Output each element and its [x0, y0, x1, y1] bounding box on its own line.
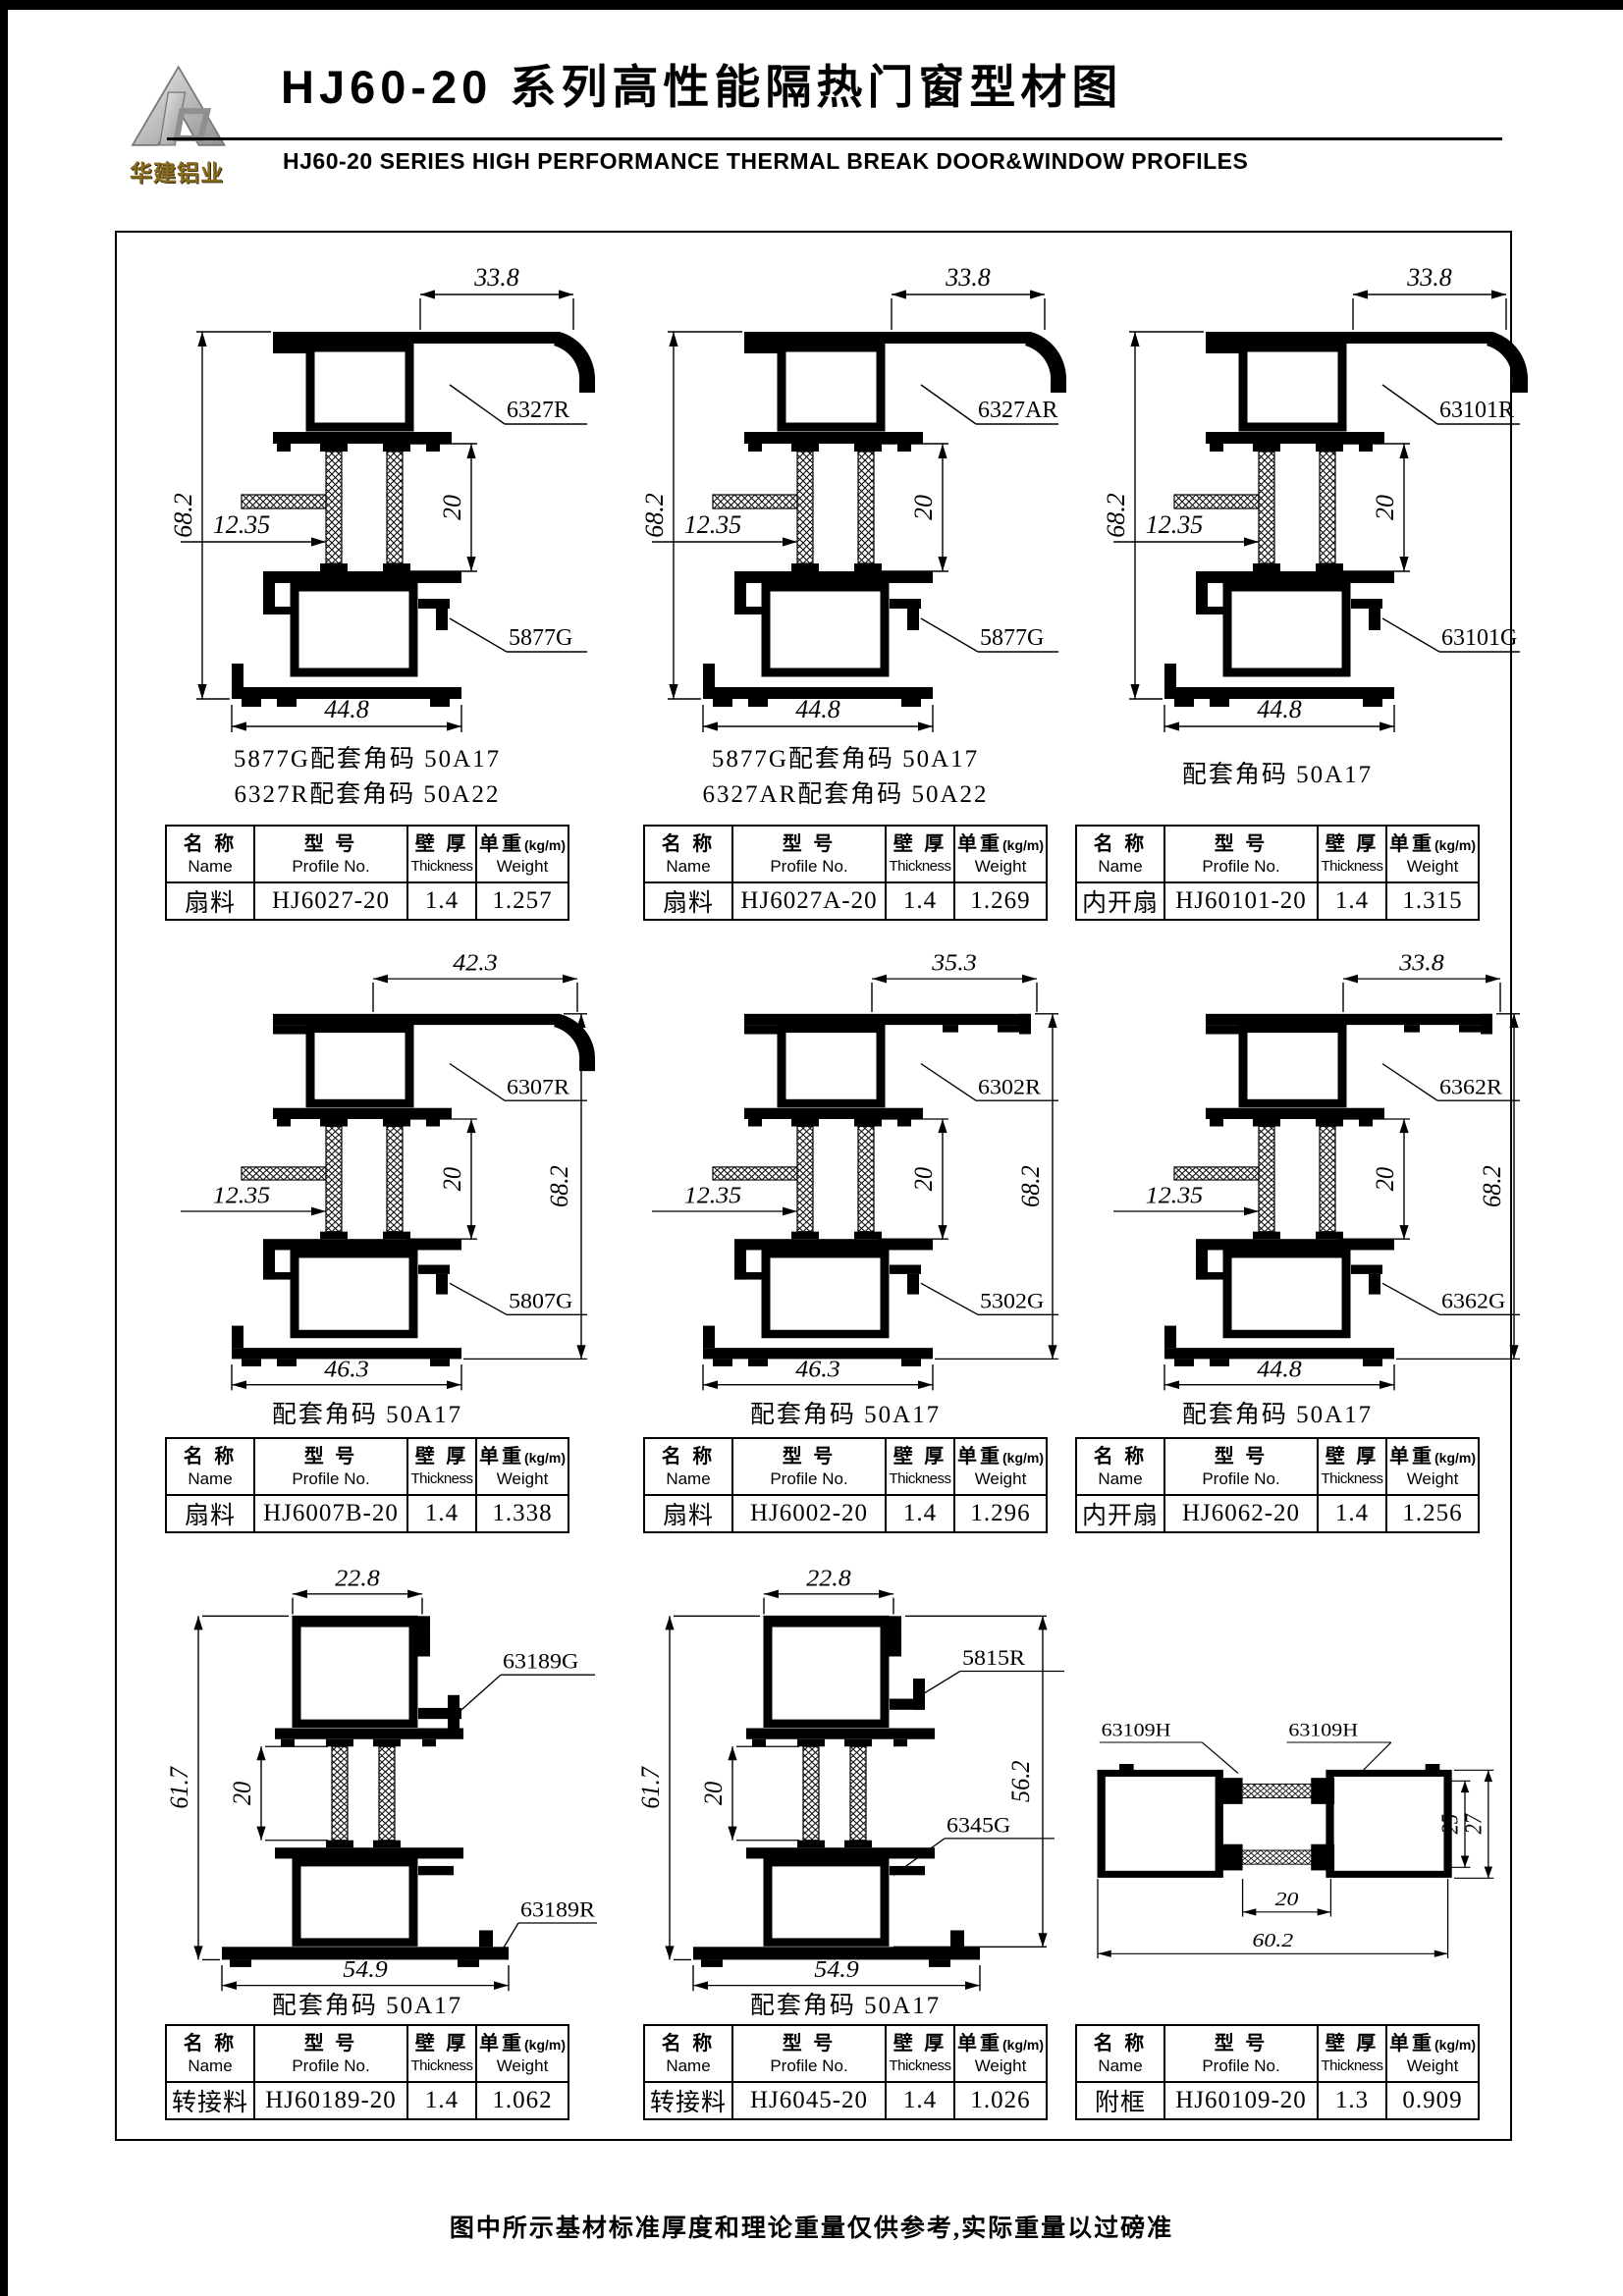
col-header-thickness: 壁 厚Thickness [886, 1438, 954, 1495]
svg-text:63109H: 63109H [1288, 1721, 1358, 1740]
table-row: 扇料 HJ6027-20 1.4 1.257 [166, 882, 568, 920]
profile-drawing-8: 63109H63109H25272060.2 [1065, 1710, 1497, 2034]
svg-text:12.35: 12.35 [213, 1183, 270, 1208]
cell-profile-no: HJ6062-20 [1164, 1495, 1318, 1532]
svg-text:68.2: 68.2 [640, 493, 669, 538]
cell-weight: 1.026 [954, 2082, 1047, 2119]
spec-table-6: 名 称Name 型 号Profile No. 壁 厚Thickness 单重(k… [165, 2024, 569, 2120]
svg-text:54.9: 54.9 [814, 1957, 859, 1983]
profile-drawing-0: 33.868.212.352044.86327R5877G [126, 247, 597, 738]
svg-text:61.7: 61.7 [166, 1766, 193, 1809]
svg-text:68.2: 68.2 [546, 1165, 573, 1207]
svg-text:20: 20 [1371, 495, 1399, 520]
col-header-thickness: 壁 厚Thickness [886, 2025, 954, 2082]
svg-text:68.2: 68.2 [1017, 1165, 1045, 1207]
svg-text:44.8: 44.8 [1257, 695, 1302, 723]
fitting-note-line: 6327AR配套角码 50A22 [643, 777, 1048, 813]
cell-name: 扇料 [166, 882, 254, 920]
spec-table-2: 名 称Name 型 号Profile No. 壁 厚Thickness 单重(k… [1075, 825, 1480, 921]
cell-name: 转接料 [644, 2082, 732, 2119]
svg-text:5302G: 5302G [980, 1289, 1044, 1313]
col-header-profile: 型 号Profile No. [732, 1438, 886, 1495]
table-row: 转接料 HJ60189-20 1.4 1.062 [166, 2082, 568, 2119]
logo-mark-icon [126, 63, 228, 149]
col-header-profile: 型 号Profile No. [732, 826, 886, 882]
fitting-note-line: 5877G配套角码 50A17 [165, 742, 569, 777]
svg-text:20: 20 [700, 1781, 728, 1805]
cell-profile-no: HJ60189-20 [254, 2082, 407, 2119]
cell-profile-no: HJ6002-20 [732, 1495, 886, 1532]
profile-drawing-4: 35.368.212.352046.36302R5302G [597, 934, 1068, 1396]
cell-weight: 1.338 [476, 1495, 568, 1532]
svg-text:63101G: 63101G [1441, 625, 1517, 651]
col-header-thickness: 壁 厚Thickness [407, 2025, 476, 2082]
cell-name: 扇料 [644, 1495, 732, 1532]
svg-text:20: 20 [1275, 1887, 1299, 1909]
svg-text:12.35: 12.35 [684, 1183, 741, 1208]
col-header-name: 名 称Name [644, 2025, 732, 2082]
company-logo: 华建铝业 [120, 63, 234, 187]
svg-text:20: 20 [1372, 1167, 1399, 1192]
svg-text:5877G: 5877G [509, 625, 572, 651]
page-subtitle: HJ60-20 SERIES HIGH PERFORMANCE THERMAL … [283, 148, 1248, 175]
cell-thickness: 1.3 [1318, 2082, 1386, 2119]
svg-text:56.2: 56.2 [1007, 1760, 1035, 1802]
svg-text:60.2: 60.2 [1252, 1929, 1293, 1951]
col-header-weight: 单重(kg/m)Weight [476, 1438, 568, 1495]
svg-text:44.8: 44.8 [795, 695, 840, 723]
svg-text:44.8: 44.8 [324, 695, 369, 723]
spec-table-3: 名 称Name 型 号Profile No. 壁 厚Thickness 单重(k… [165, 1437, 569, 1533]
svg-text:25: 25 [1436, 1814, 1463, 1834]
cell-profile-no: HJ6027A-20 [732, 882, 886, 920]
cell-weight: 1.269 [954, 882, 1047, 920]
svg-text:20: 20 [439, 1167, 466, 1192]
col-header-thickness: 壁 厚Thickness [1318, 2025, 1386, 2082]
table-row: 转接料 HJ6045-20 1.4 1.026 [644, 2082, 1047, 2119]
svg-text:5807G: 5807G [509, 1289, 572, 1313]
page-title: HJ60-20 系列高性能隔热门窗型材图 [281, 49, 1122, 117]
table-row: 内开扇 HJ60101-20 1.4 1.315 [1076, 882, 1479, 920]
spec-table-7: 名 称Name 型 号Profile No. 壁 厚Thickness 单重(k… [643, 2024, 1048, 2120]
profile-drawing-3: 42.368.212.352046.36307R5807G [126, 934, 597, 1396]
col-header-name: 名 称Name [1076, 2025, 1164, 2082]
svg-text:33.8: 33.8 [1406, 263, 1452, 292]
col-header-thickness: 壁 厚Thickness [1318, 1438, 1386, 1495]
cell-profile-no: HJ60101-20 [1164, 882, 1318, 920]
svg-text:54.9: 54.9 [343, 1957, 388, 1983]
col-header-profile: 型 号Profile No. [254, 1438, 407, 1495]
fitting-note-2: 配套角码 50A17 [1075, 758, 1480, 793]
fitting-note-7: 配套角码 50A17 [643, 1989, 1048, 2024]
table-row: 扇料 HJ6007B-20 1.4 1.338 [166, 1495, 568, 1532]
col-header-name: 名 称Name [1076, 1438, 1164, 1495]
spec-table-5: 名 称Name 型 号Profile No. 壁 厚Thickness 单重(k… [1075, 1437, 1480, 1533]
col-header-thickness: 壁 厚Thickness [1318, 826, 1386, 882]
cell-thickness: 1.4 [407, 1495, 476, 1532]
col-header-name: 名 称Name [1076, 826, 1164, 882]
spec-table-4: 名 称Name 型 号Profile No. 壁 厚Thickness 单重(k… [643, 1437, 1048, 1533]
title-rule [167, 137, 1502, 140]
svg-text:6362R: 6362R [1439, 1075, 1502, 1099]
col-header-profile: 型 号Profile No. [1164, 1438, 1318, 1495]
col-header-name: 名 称Name [166, 826, 254, 882]
logo-text: 华建铝业 [120, 154, 234, 187]
fitting-note-line: 配套角码 50A17 [165, 1989, 569, 2024]
svg-text:63101R: 63101R [1439, 398, 1514, 423]
svg-text:46.3: 46.3 [795, 1357, 839, 1382]
page-edge-left [0, 0, 8, 2296]
col-header-thickness: 壁 厚Thickness [407, 1438, 476, 1495]
cell-name: 内开扇 [1076, 882, 1164, 920]
svg-text:35.3: 35.3 [931, 950, 977, 976]
cell-profile-no: HJ6027-20 [254, 882, 407, 920]
svg-text:12.35: 12.35 [1146, 1183, 1203, 1208]
svg-text:33.8: 33.8 [945, 263, 991, 292]
cell-name: 扇料 [644, 882, 732, 920]
drawing-sheet: 华建铝业 HJ60-20 系列高性能隔热门窗型材图 HJ60-20 SERIES… [0, 0, 1623, 2296]
cell-weight: 1.256 [1386, 1495, 1479, 1532]
svg-text:6327AR: 6327AR [978, 398, 1057, 423]
col-header-profile: 型 号Profile No. [1164, 826, 1318, 882]
cell-profile-no: HJ60109-20 [1164, 2082, 1318, 2119]
svg-text:63189G: 63189G [503, 1649, 579, 1674]
svg-text:46.3: 46.3 [324, 1357, 368, 1382]
cell-thickness: 1.4 [407, 882, 476, 920]
svg-text:12.35: 12.35 [213, 510, 271, 539]
cell-weight: 1.296 [954, 1495, 1047, 1532]
fitting-note-line: 5877G配套角码 50A17 [643, 742, 1048, 777]
col-header-weight: 单重(kg/m)Weight [954, 2025, 1047, 2082]
cell-name: 转接料 [166, 2082, 254, 2119]
svg-text:33.8: 33.8 [473, 263, 519, 292]
fitting-note-6: 配套角码 50A17 [165, 1989, 569, 2024]
svg-text:33.8: 33.8 [1398, 950, 1444, 976]
profile-drawing-6: 22.861.72054.963189G63189R [128, 1563, 599, 1995]
cell-profile-no: HJ6045-20 [732, 2082, 886, 2119]
profile-drawing-7: 22.861.72054.956.25815R6345G [599, 1563, 1070, 1995]
fitting-note-line: 6327R配套角码 50A22 [165, 777, 569, 813]
profile-drawing-1: 33.868.212.352044.86327AR5877G [597, 247, 1068, 738]
col-header-profile: 型 号Profile No. [1164, 2025, 1318, 2082]
svg-text:6302R: 6302R [978, 1075, 1041, 1099]
svg-text:5877G: 5877G [980, 625, 1044, 651]
svg-text:68.2: 68.2 [1102, 493, 1130, 538]
cell-name: 附框 [1076, 2082, 1164, 2119]
cell-thickness: 1.4 [886, 882, 954, 920]
svg-text:20: 20 [438, 495, 466, 520]
svg-text:12.35: 12.35 [1146, 510, 1204, 539]
col-header-weight: 单重(kg/m)Weight [476, 2025, 568, 2082]
col-header-weight: 单重(kg/m)Weight [1386, 2025, 1479, 2082]
fitting-note-line: 配套角码 50A17 [165, 1398, 569, 1433]
svg-text:63109H: 63109H [1102, 1721, 1171, 1740]
col-header-weight: 单重(kg/m)Weight [476, 826, 568, 882]
cell-weight: 1.315 [1386, 882, 1479, 920]
col-header-name: 名 称Name [644, 826, 732, 882]
cell-thickness: 1.4 [1318, 1495, 1386, 1532]
fitting-note-line: 配套角码 50A17 [1075, 1398, 1480, 1433]
svg-text:5815R: 5815R [962, 1646, 1025, 1671]
cell-profile-no: HJ6007B-20 [254, 1495, 407, 1532]
svg-text:6307R: 6307R [507, 1075, 569, 1099]
svg-text:68.2: 68.2 [1479, 1165, 1506, 1207]
table-row: 扇料 HJ6027A-20 1.4 1.269 [644, 882, 1047, 920]
fitting-note-5: 配套角码 50A17 [1075, 1398, 1480, 1433]
svg-text:6362G: 6362G [1441, 1289, 1505, 1313]
fitting-note-3: 配套角码 50A17 [165, 1398, 569, 1433]
profile-drawing-5: 33.868.212.352044.86362R6362G [1058, 934, 1530, 1396]
col-header-weight: 单重(kg/m)Weight [954, 1438, 1047, 1495]
fitting-note-line: 配套角码 50A17 [643, 1398, 1048, 1433]
table-row: 内开扇 HJ6062-20 1.4 1.256 [1076, 1495, 1479, 1532]
svg-text:12.35: 12.35 [684, 510, 742, 539]
svg-text:61.7: 61.7 [637, 1766, 665, 1809]
table-row: 附框 HJ60109-20 1.3 0.909 [1076, 2082, 1479, 2119]
cell-thickness: 1.4 [407, 2082, 476, 2119]
col-header-weight: 单重(kg/m)Weight [1386, 1438, 1479, 1495]
cell-thickness: 1.4 [886, 1495, 954, 1532]
svg-text:6327R: 6327R [507, 398, 569, 423]
col-header-weight: 单重(kg/m)Weight [954, 826, 1047, 882]
svg-text:63189R: 63189R [520, 1897, 595, 1922]
col-header-profile: 型 号Profile No. [254, 2025, 407, 2082]
col-header-profile: 型 号Profile No. [254, 826, 407, 882]
svg-text:20: 20 [229, 1781, 256, 1805]
page-edge-top [0, 0, 1623, 10]
col-header-thickness: 壁 厚Thickness [886, 826, 954, 882]
cell-weight: 1.062 [476, 2082, 568, 2119]
col-header-name: 名 称Name [166, 1438, 254, 1495]
col-header-name: 名 称Name [166, 2025, 254, 2082]
svg-text:42.3: 42.3 [453, 950, 497, 976]
cell-weight: 1.257 [476, 882, 568, 920]
svg-text:22.8: 22.8 [806, 1566, 851, 1591]
spec-table-0: 名 称Name 型 号Profile No. 壁 厚Thickness 单重(k… [165, 825, 569, 921]
svg-text:20: 20 [910, 1167, 938, 1192]
col-header-weight: 单重(kg/m)Weight [1386, 826, 1479, 882]
fitting-note-line: 配套角码 50A17 [1075, 758, 1480, 793]
cell-name: 扇料 [166, 1495, 254, 1532]
fitting-note-0: 5877G配套角码 50A176327R配套角码 50A22 [165, 742, 569, 813]
cell-thickness: 1.4 [886, 2082, 954, 2119]
profile-drawing-2: 33.868.212.352044.863101R63101G [1058, 247, 1530, 738]
col-header-name: 名 称Name [644, 1438, 732, 1495]
svg-text:22.8: 22.8 [335, 1566, 380, 1591]
col-header-thickness: 壁 厚Thickness [407, 826, 476, 882]
cell-weight: 0.909 [1386, 2082, 1479, 2119]
table-row: 扇料 HJ6002-20 1.4 1.296 [644, 1495, 1047, 1532]
svg-text:68.2: 68.2 [169, 493, 197, 538]
fitting-note-line: 配套角码 50A17 [643, 1989, 1048, 2024]
footer-note: 图中所示基材标准厚度和理论重量仅供参考,实际重量以过磅准 [0, 2209, 1623, 2244]
spec-table-1: 名 称Name 型 号Profile No. 壁 厚Thickness 单重(k… [643, 825, 1048, 921]
svg-text:6345G: 6345G [947, 1813, 1011, 1838]
svg-text:44.8: 44.8 [1257, 1357, 1302, 1382]
svg-text:20: 20 [909, 495, 938, 520]
col-header-profile: 型 号Profile No. [732, 2025, 886, 2082]
spec-table-8: 名 称Name 型 号Profile No. 壁 厚Thickness 单重(k… [1075, 2024, 1480, 2120]
svg-text:27: 27 [1460, 1813, 1487, 1834]
cell-name: 内开扇 [1076, 1495, 1164, 1532]
fitting-note-4: 配套角码 50A17 [643, 1398, 1048, 1433]
cell-thickness: 1.4 [1318, 882, 1386, 920]
fitting-note-1: 5877G配套角码 50A176327AR配套角码 50A22 [643, 742, 1048, 813]
